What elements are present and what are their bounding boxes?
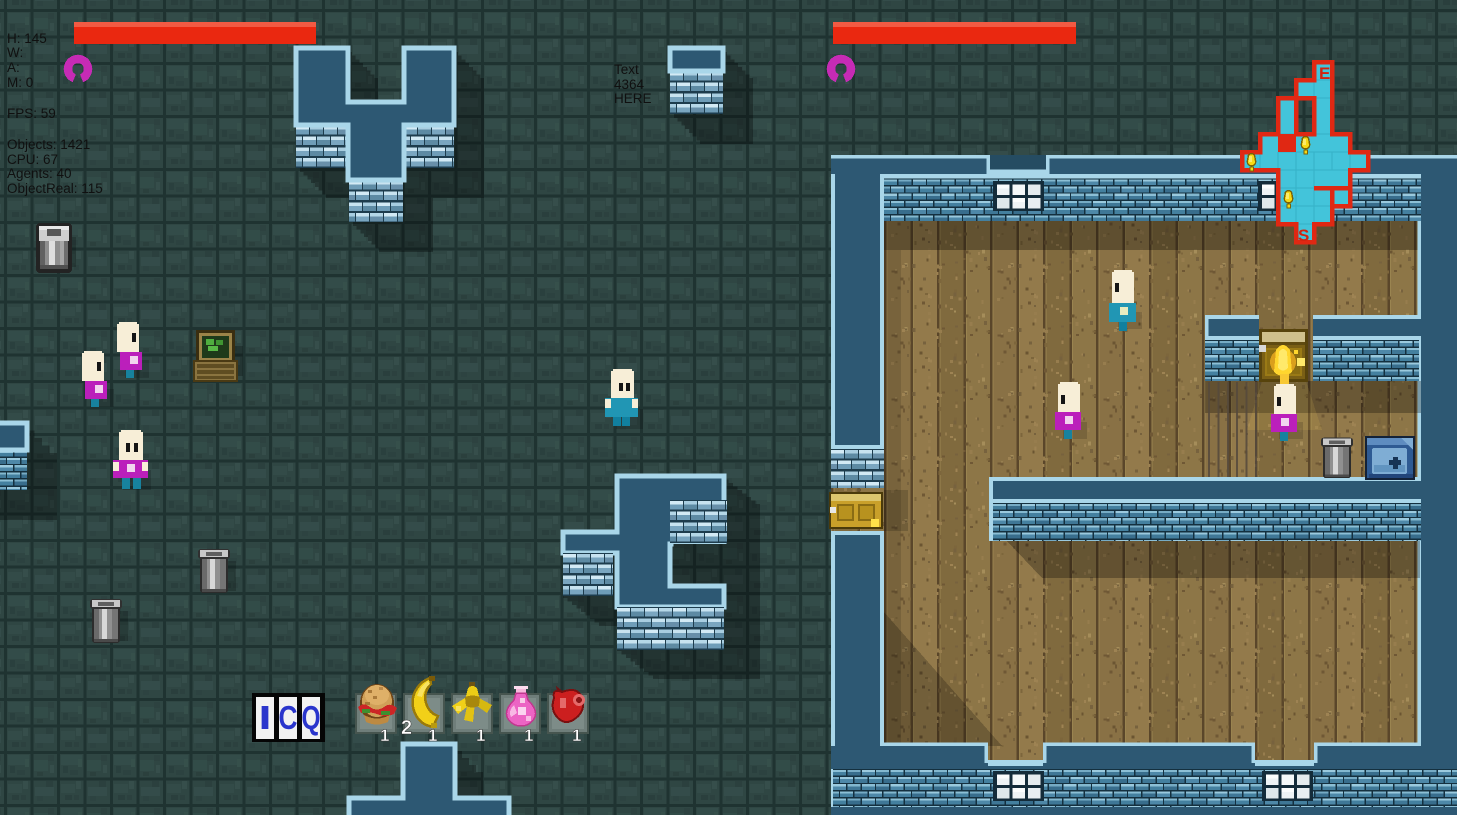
svg-text:Objects: 1421: Objects: 1421 [7,137,90,152]
svg-text:M: 0: M: 0 [7,75,33,90]
svg-text:ObjectReal: 115: ObjectReal: 115 [7,181,103,196]
svg-text:1: 1 [476,726,485,745]
svg-text:I: I [259,699,272,736]
svg-text:2: 2 [401,717,412,739]
svg-text:C: C [279,699,298,736]
svg-text:W:: W: [7,45,23,60]
svg-text:A:: A: [7,60,20,75]
svg-text:S: S [1298,226,1309,245]
svg-text:E: E [1319,64,1330,83]
svg-text:4364: 4364 [614,77,645,92]
svg-text:1: 1 [380,726,389,745]
svg-text:CPU: 67: CPU: 67 [7,152,58,167]
svg-text:Agents: 40: Agents: 40 [7,166,72,181]
svg-text:HERE: HERE [614,91,652,106]
svg-text:1: 1 [524,726,533,745]
svg-text:1: 1 [428,726,437,745]
svg-text:Q: Q [302,699,321,736]
svg-text:1: 1 [572,726,581,745]
svg-text:FPS: 59: FPS: 59 [7,106,56,121]
svg-text:Text: Text [614,62,639,77]
svg-text:H: 145: H: 145 [7,31,47,46]
